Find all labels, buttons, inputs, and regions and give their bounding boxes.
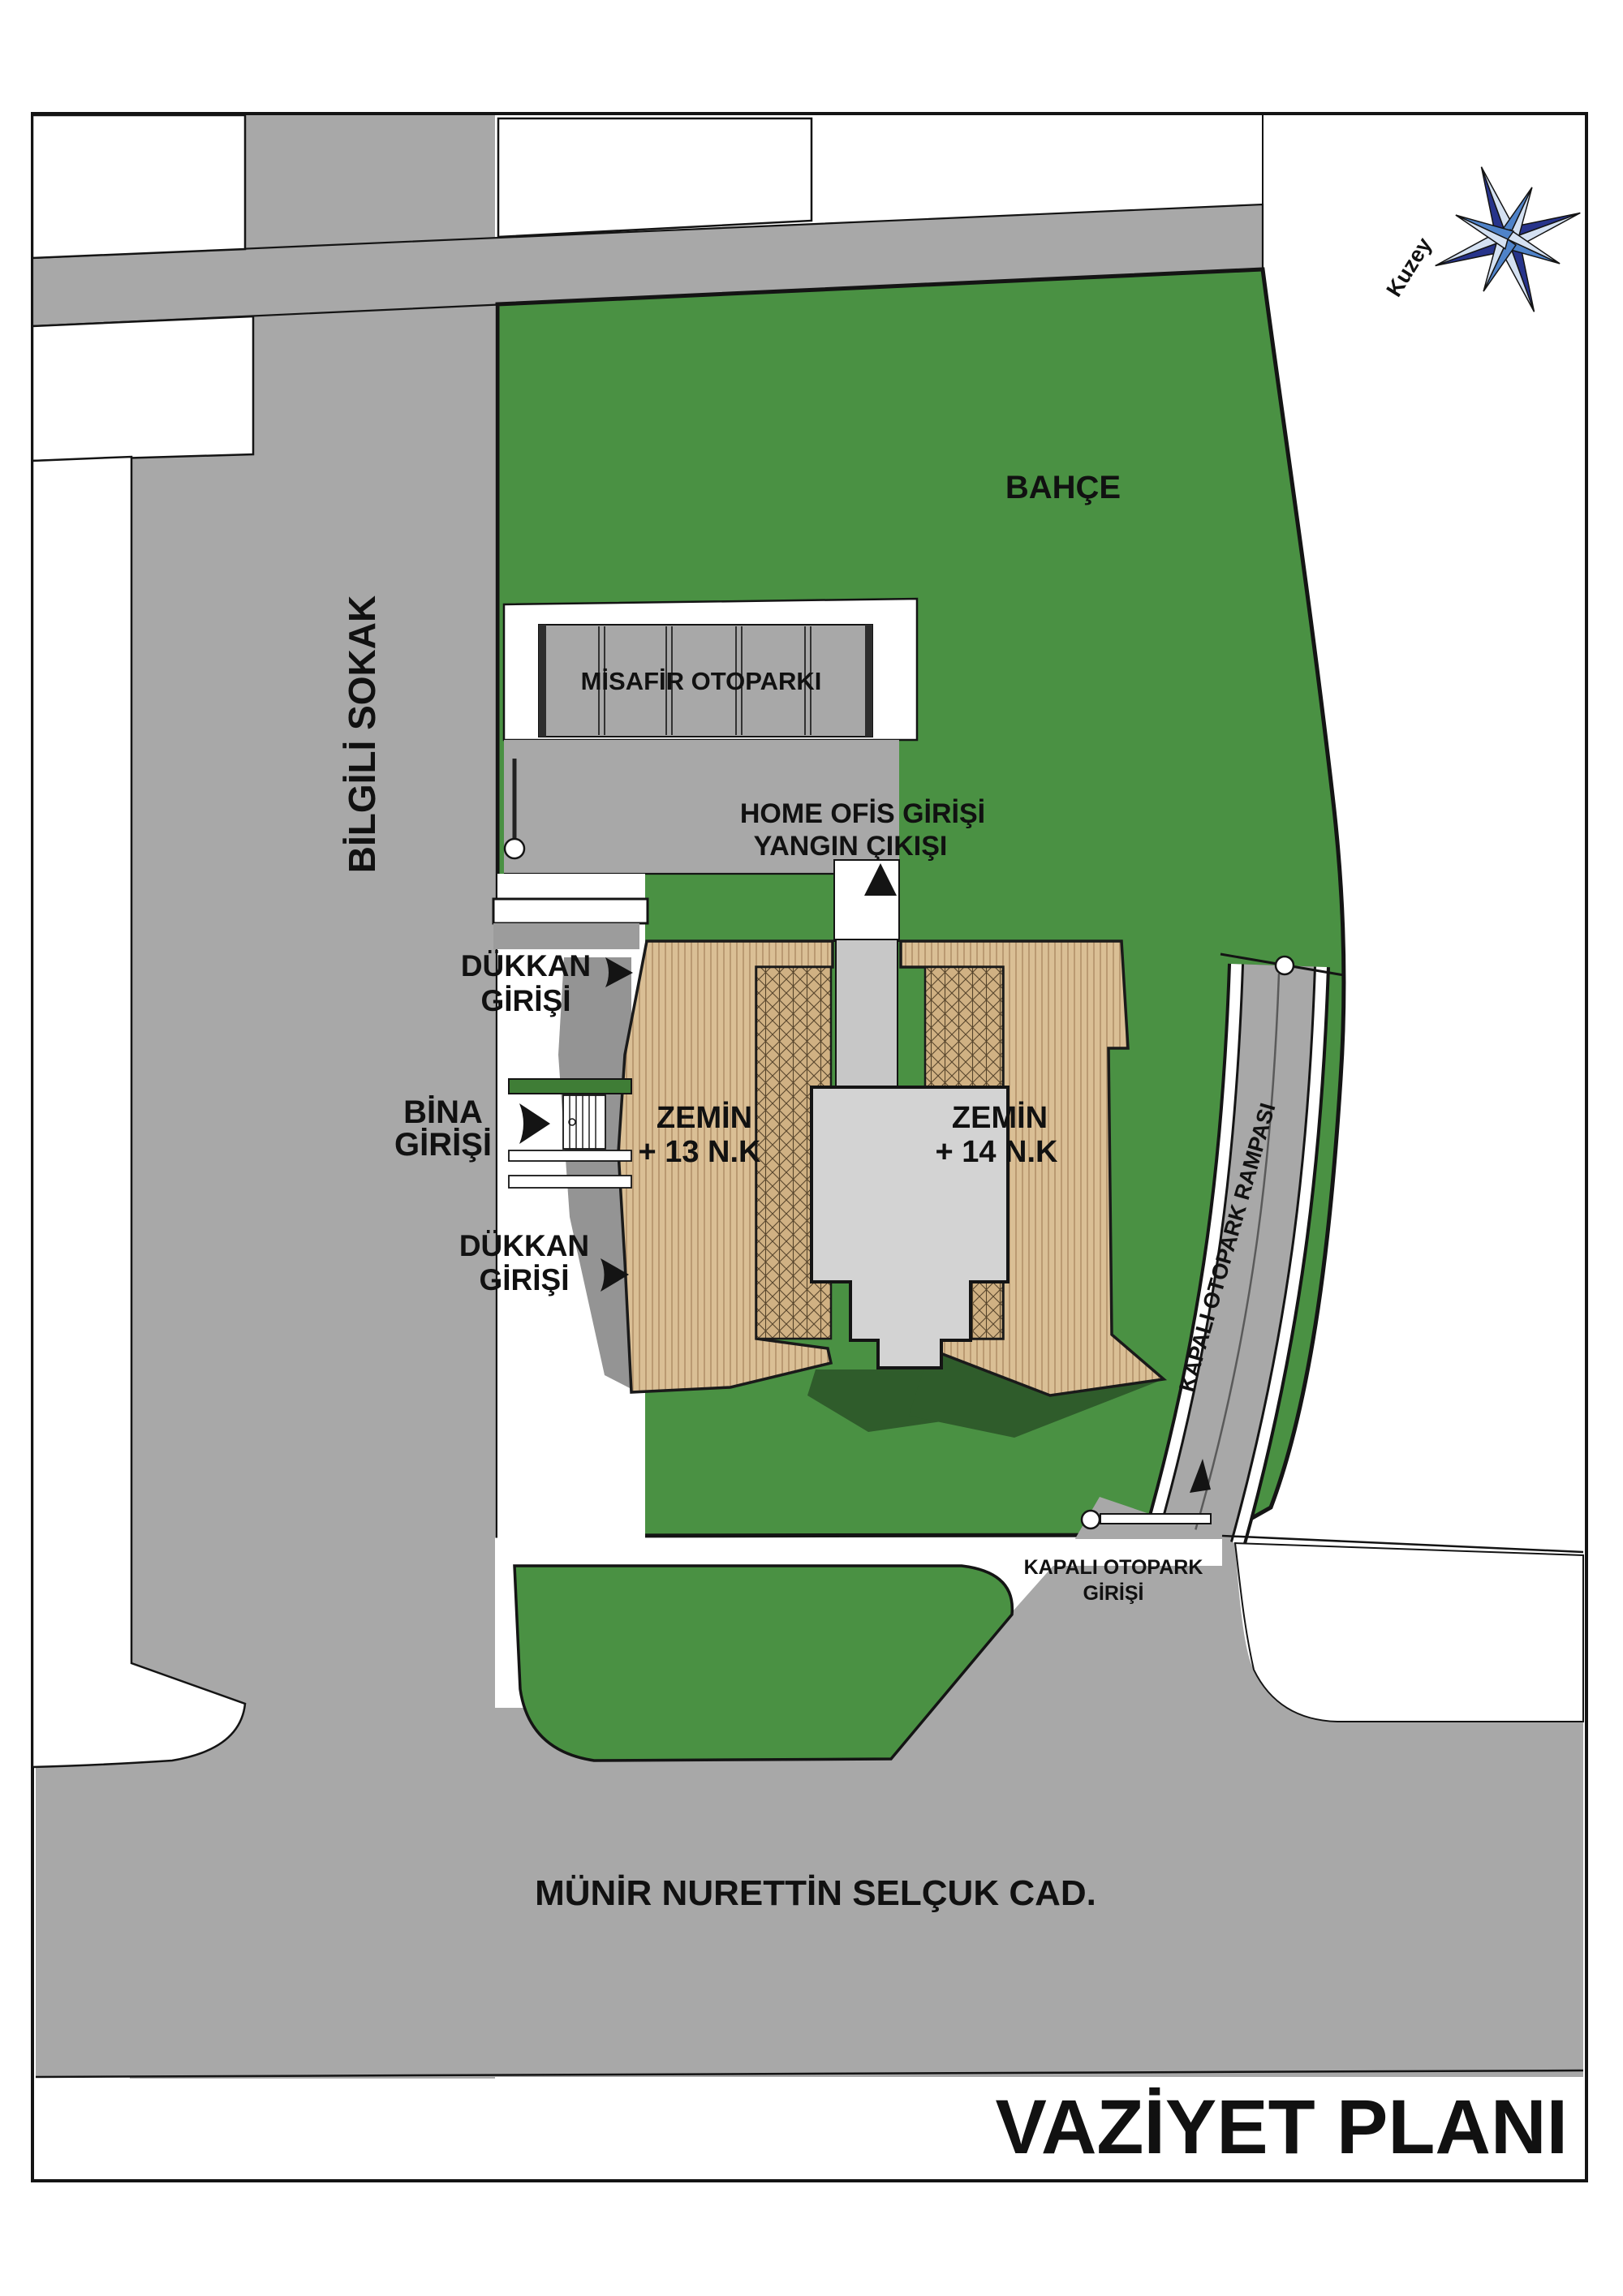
- block-left-label: ZEMİN + 13 N.K: [638, 1101, 761, 1169]
- svg-text:GİRİŞİ: GİRİŞİ: [479, 1263, 569, 1296]
- svg-text:KAPALI OTOPARK: KAPALI OTOPARK: [1024, 1556, 1203, 1579]
- fire-exit-walkway: [834, 860, 899, 941]
- svg-text:+ 13 N.K: + 13 N.K: [638, 1135, 761, 1169]
- site-plan-page: BİLGİLİ SOKAK MÜNİR NURETTİN SELÇUK CAD.…: [0, 0, 1623, 2296]
- sidewalk-block-northeast: [498, 118, 811, 237]
- canopy-shadow: [493, 923, 639, 949]
- svg-text:DÜKKAN: DÜKKAN: [461, 949, 591, 982]
- home-office-entrance-label: HOME OFİS GİRİŞİ: [740, 798, 985, 829]
- ramp-top-marker: [1276, 957, 1294, 974]
- svg-text:ZEMİN: ZEMİN: [657, 1101, 752, 1135]
- svg-text:GİRİŞİ: GİRİŞİ: [480, 984, 570, 1017]
- svg-text:DÜKKAN: DÜKKAN: [459, 1229, 589, 1262]
- garden-label: BAHÇE: [1005, 470, 1121, 505]
- entrance-canopy: [493, 899, 648, 923]
- fire-exit-label: YANGIN ÇIKIŞI: [754, 831, 948, 862]
- street-label-west: BİLGİLİ SOKAK: [341, 595, 383, 873]
- svg-text:BİNA: BİNA: [403, 1094, 483, 1130]
- svg-text:+ 14 N.K: + 14 N.K: [935, 1135, 1058, 1169]
- sidewalk-wedge-southeast: [1235, 1543, 1583, 1722]
- svg-text:GİRİŞİ: GİRİŞİ: [394, 1127, 492, 1163]
- svg-text:GİRİŞİ: GİRİŞİ: [1083, 1582, 1143, 1605]
- svg-text:ZEMİN: ZEMİN: [952, 1101, 1048, 1135]
- block-right-label: ZEMİN + 14 N.K: [935, 1101, 1058, 1169]
- core-corridor: [836, 939, 898, 1090]
- building-entrance-label: BİNA GİRİŞİ: [394, 1094, 492, 1163]
- guest-parking-label: MİSAFİR OTOPARKI: [581, 667, 822, 695]
- sidewalk-block-northwest: [32, 115, 245, 258]
- page-title: VAZİYET PLANI: [996, 2084, 1569, 2170]
- street-label-south: MÜNİR NURETTİN SELÇUK CAD.: [535, 1873, 1096, 1913]
- sidewalk-block-west-upper: [32, 316, 253, 461]
- site-plan-canvas: BİLGİLİ SOKAK MÜNİR NURETTİN SELÇUK CAD.…: [0, 0, 1623, 2296]
